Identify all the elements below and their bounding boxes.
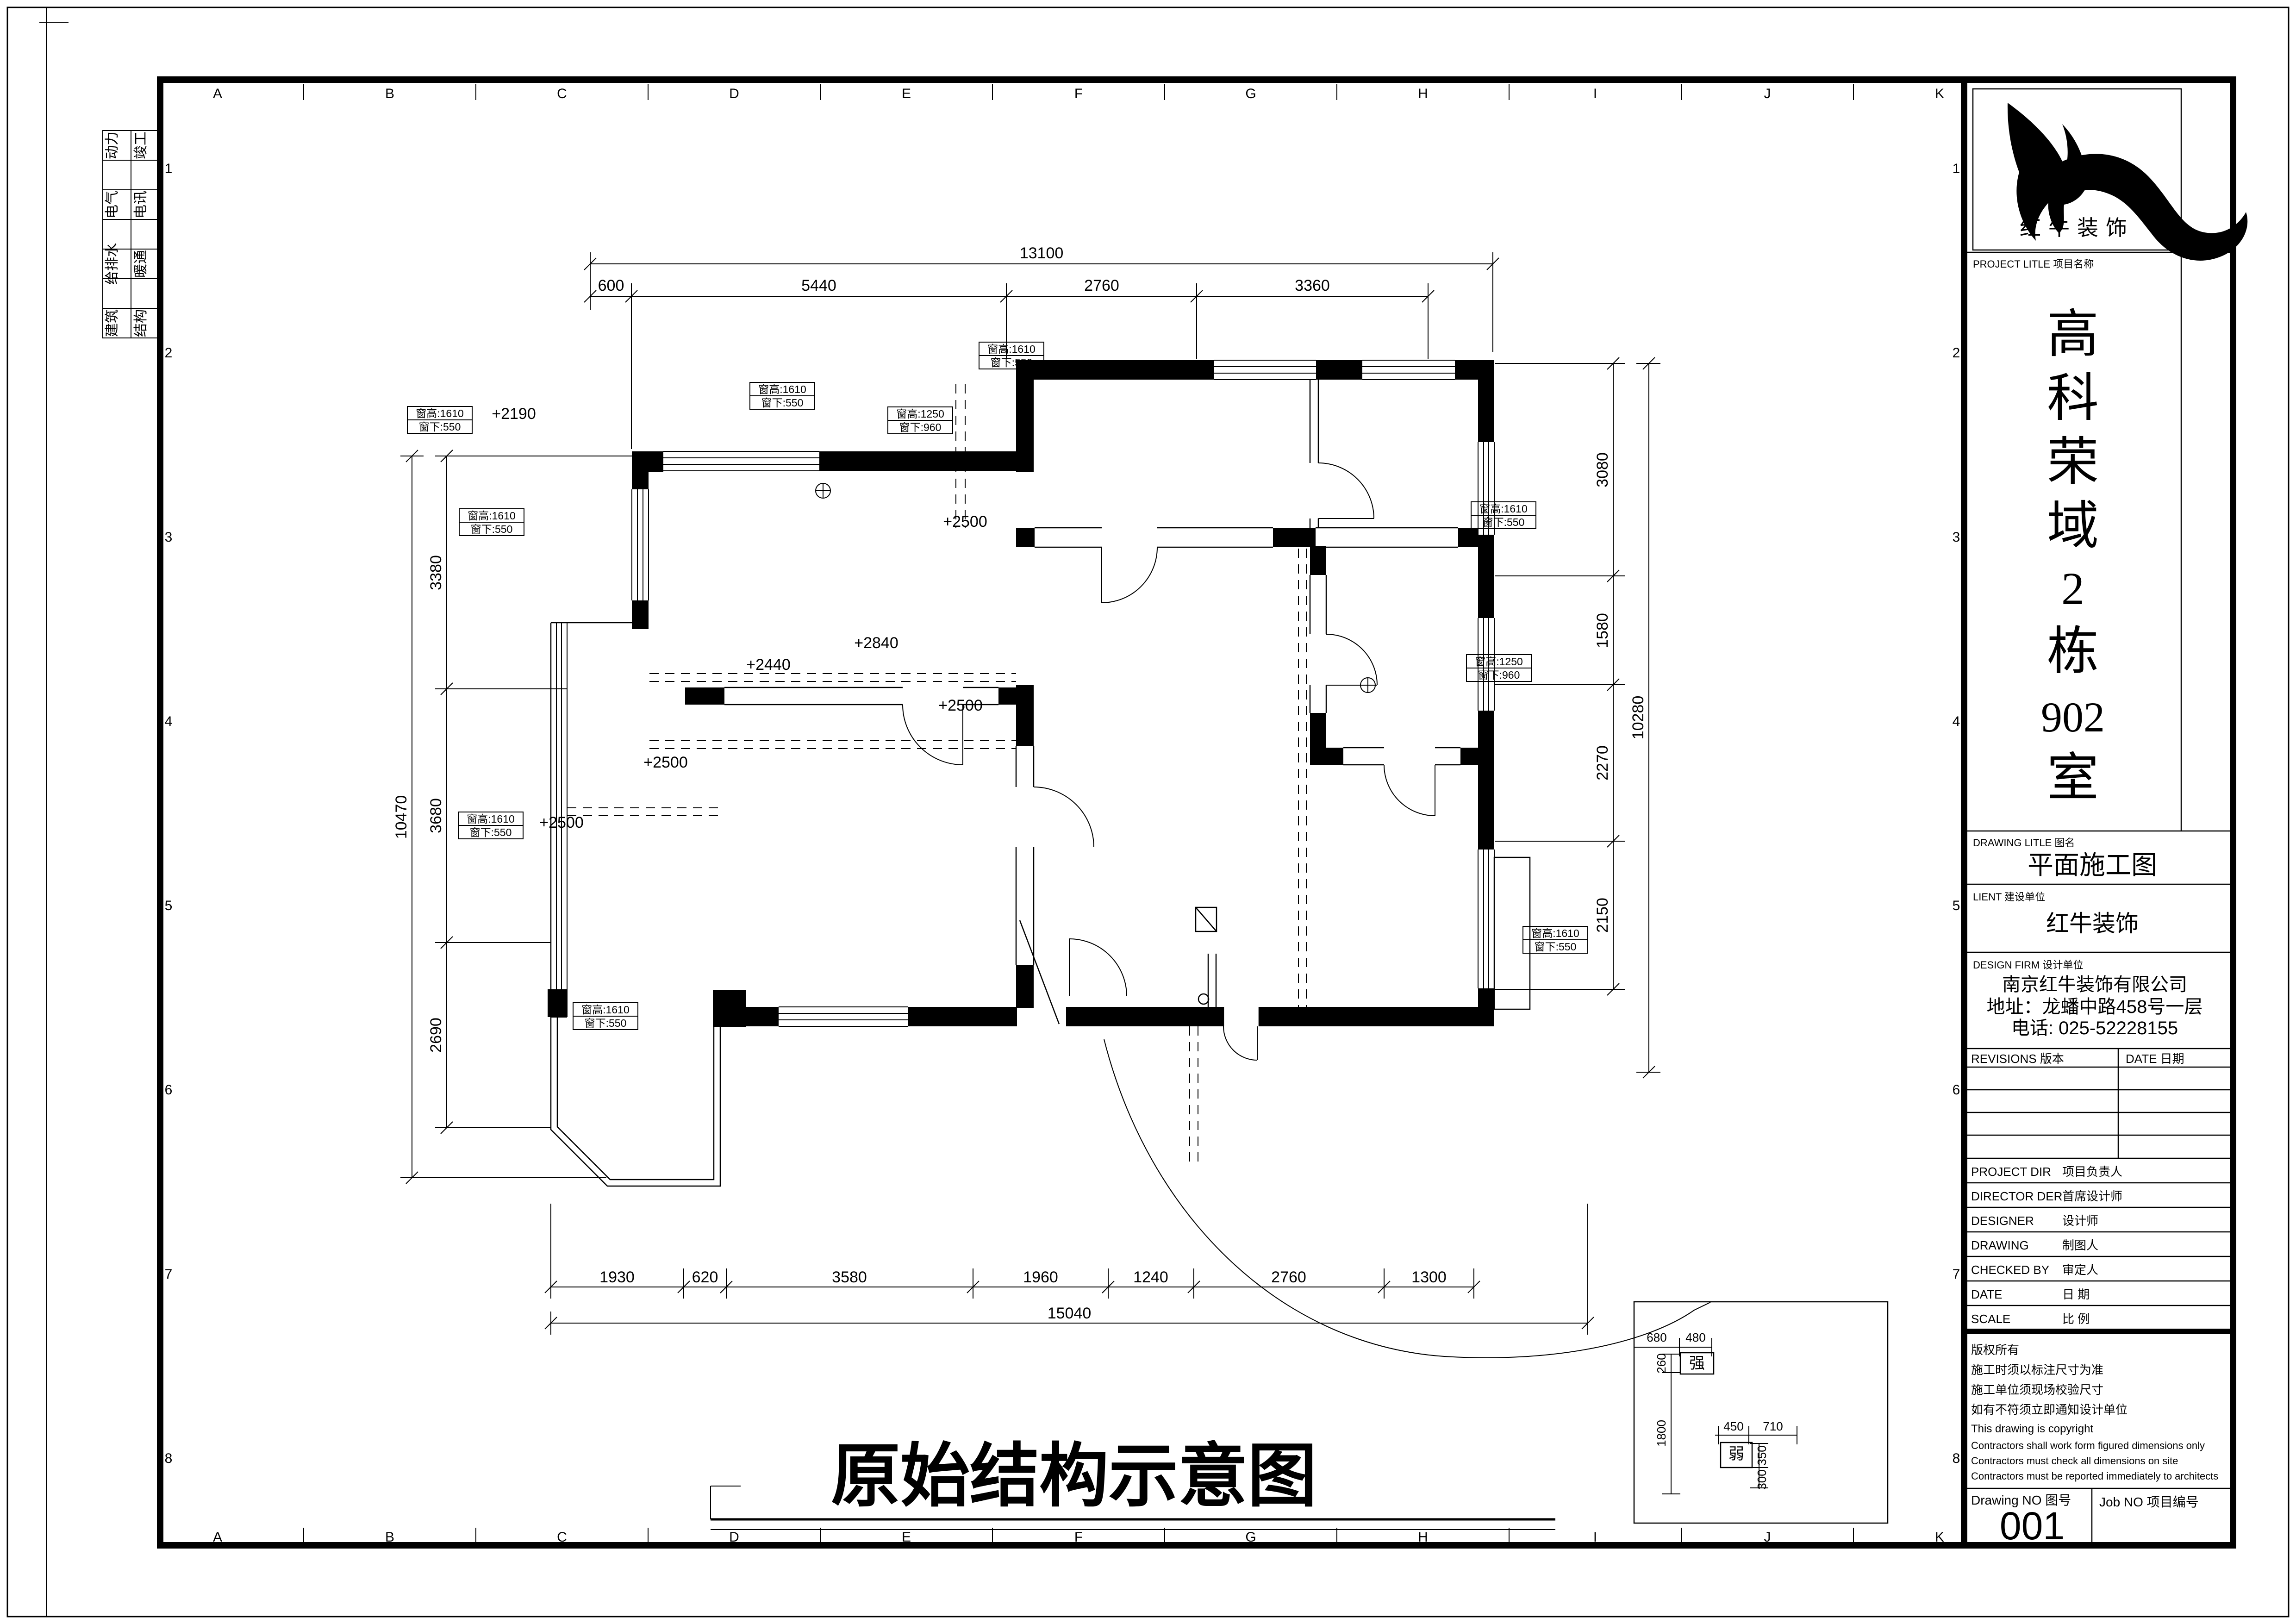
row-number: 6: [165, 1082, 173, 1098]
row-number: 6: [1953, 1082, 1960, 1098]
svg-text:项目负责人: 项目负责人: [2062, 1165, 2122, 1179]
row-number: 5: [165, 898, 173, 913]
svg-text:科: 科: [2047, 370, 2099, 427]
col-letter: A: [213, 1530, 222, 1545]
strong-electric-box-label: 强: [1689, 1355, 1705, 1372]
discipline-label: 建筑: [105, 309, 120, 337]
col-letter: C: [557, 86, 567, 101]
svg-text:日 期: 日 期: [2062, 1287, 2090, 1301]
svg-text:高: 高: [2047, 306, 2099, 363]
plan-walls: [548, 360, 1494, 1027]
col-letter: E: [902, 86, 911, 101]
detail-dim: 710: [1763, 1419, 1783, 1433]
col-letter: K: [1935, 1530, 1944, 1545]
dim-bottom-total: 15040: [1048, 1305, 1092, 1322]
copyright-block: 版权所有 施工时须以标注尺寸为准 施工单位须现场校验尺寸 如有不符须立即通知设计…: [1971, 1343, 2218, 1482]
dim-bottom: 1300: [1411, 1268, 1447, 1286]
page-border: [7, 7, 2289, 1617]
firm-phone: 电话: 025-52228155: [2011, 1018, 2178, 1038]
svg-text:DIRECTOR DER: DIRECTOR DER: [1971, 1189, 2062, 1203]
plan-doors: [903, 463, 1435, 1060]
window-tag: 窗高:1250 窗下:960: [888, 407, 953, 434]
dim-bottom: 1930: [599, 1268, 635, 1286]
col-letter: F: [1074, 1530, 1083, 1545]
dim-right: 3080: [1594, 452, 1611, 487]
svg-text:PROJECT DIR: PROJECT DIR: [1971, 1165, 2051, 1179]
dim-right: 1580: [1594, 613, 1611, 648]
row-number: 3: [165, 530, 173, 545]
plan-partitions: [551, 380, 1530, 1186]
row-number: 4: [1953, 714, 1960, 729]
survey-point-icon: [816, 483, 1375, 693]
svg-text:荣: 荣: [2047, 434, 2099, 491]
discipline-label: 竣工: [133, 131, 149, 159]
discipline-strip: 动力 竣工 电气 电讯 给排水 暖通 建筑 结构: [103, 131, 160, 338]
window-tags: 窗高:1610 窗下:550 窗高:1610 窗下:550 窗高:1610 窗下…: [407, 342, 1588, 1030]
level-mark: +2500: [643, 754, 688, 771]
dim-left: 3380: [427, 555, 445, 590]
col-letter: A: [213, 86, 222, 101]
level-mark: +2190: [492, 405, 536, 423]
col-letter: D: [729, 86, 739, 101]
svg-text:窗下:550: 窗下:550: [471, 523, 513, 535]
col-letter: H: [1418, 86, 1428, 101]
drawing-canvas: A B C D E F G H I J K A B C D E F G H I …: [0, 0, 2296, 1624]
row-number: 4: [165, 714, 173, 729]
svg-text:窗下:550: 窗下:550: [761, 397, 804, 409]
dim-top: 2760: [1084, 277, 1119, 294]
window-tag: 窗高:1610 窗下:550: [750, 382, 815, 409]
detail-dim: 480: [1685, 1330, 1705, 1344]
bull-logo-wave-icon: [2048, 154, 2248, 261]
col-letter: E: [902, 1530, 911, 1545]
window-tag: 窗高:1610 窗下:550: [1523, 926, 1588, 953]
dim-left: 3680: [427, 798, 445, 833]
svg-text:施工单位须现场校验尺寸: 施工单位须现场校验尺寸: [1971, 1383, 2103, 1397]
svg-text:窗下:960: 窗下:960: [1478, 669, 1520, 681]
window-tag: 窗高:1610 窗下:550: [459, 509, 524, 536]
level-mark: +2500: [938, 697, 983, 714]
firm-address: 地址：龙蟠中路458号一层: [1987, 997, 2203, 1017]
row-number: 1: [165, 161, 173, 176]
svg-text:窗高:1610: 窗高:1610: [467, 813, 515, 825]
svg-text:CHECKED BY: CHECKED BY: [1971, 1263, 2049, 1277]
level-mark: +2500: [943, 513, 987, 531]
detail-dim: 680: [1647, 1330, 1666, 1344]
row-number: 1: [1953, 161, 1960, 176]
detail-dim: 300: [1755, 1469, 1769, 1489]
svg-text:窗下:550: 窗下:550: [470, 826, 512, 838]
dim-right-total: 10280: [1629, 696, 1647, 740]
svg-text:域: 域: [2047, 498, 2099, 555]
svg-text:窗高:1610: 窗高:1610: [758, 383, 806, 395]
detail-dim: 350: [1755, 1445, 1769, 1465]
col-letter: D: [729, 1530, 739, 1545]
drawing-title: 平面施工图: [2028, 850, 2157, 880]
discipline-label: 电讯: [133, 191, 149, 219]
signature-rows: PROJECT DIR项目负责人 DIRECTOR DER首席设计师 DESIG…: [1971, 1165, 2122, 1326]
svg-text:DESIGNER: DESIGNER: [1971, 1214, 2034, 1228]
dim-bottom: 1960: [1023, 1268, 1058, 1286]
svg-text:This drawing is copyright: This drawing is copyright: [1971, 1423, 2093, 1435]
window-tag: 窗高:1610 窗下:550: [458, 812, 523, 839]
svg-text:室: 室: [2047, 750, 2099, 807]
cad-sheet: A B C D E F G H I J K A B C D E F G H I …: [0, 0, 2296, 1624]
plan-dashed-lines: [567, 384, 1306, 1167]
job-no-label: Job NO 项目编号: [2099, 1495, 2199, 1509]
col-letter: G: [1245, 86, 1256, 101]
col-letter: B: [385, 1530, 394, 1545]
dim-bottom: 2760: [1271, 1268, 1306, 1286]
detail-dim: 1800: [1654, 1420, 1668, 1447]
discipline-label: 暖通: [133, 250, 149, 278]
level-mark: +2440: [746, 656, 791, 674]
discipline-label: 动力: [105, 131, 120, 159]
col-letter: F: [1074, 86, 1083, 101]
row-number: 8: [165, 1451, 173, 1466]
window-tag: 窗高:1250 窗下:960: [1466, 655, 1531, 681]
svg-text:窗高:1610: 窗高:1610: [581, 1004, 630, 1016]
discipline-label: 电气: [105, 191, 120, 219]
svg-text:Contractors must be reported i: Contractors must be reported immediately…: [1971, 1470, 2218, 1482]
window-tag: 窗高:1610 窗下:550: [407, 406, 472, 433]
discipline-label: 结构: [133, 309, 149, 337]
row-number: 7: [165, 1267, 173, 1282]
col-letter: H: [1418, 1530, 1428, 1545]
col-letter: I: [1593, 86, 1597, 101]
dim-top: 600: [598, 277, 624, 294]
svg-text:Contractors must check all dim: Contractors must check all dimensions on…: [1971, 1455, 2178, 1467]
svg-text:审定人: 审定人: [2062, 1263, 2098, 1277]
detail-dim: 260: [1654, 1353, 1668, 1373]
svg-text:设计师: 设计师: [2062, 1214, 2098, 1228]
svg-text:窗下:550: 窗下:550: [1535, 941, 1577, 953]
project-name: 高 科 荣 域 2 栋 902 室: [2041, 306, 2105, 807]
row-number: 8: [1953, 1451, 1960, 1466]
col-letter: K: [1935, 86, 1944, 101]
col-letter: G: [1245, 1530, 1256, 1545]
row-number: 3: [1953, 530, 1960, 545]
svg-text:栋: 栋: [2047, 623, 2099, 681]
company-logo: 红牛装饰: [1973, 89, 2247, 261]
svg-text:DATE: DATE: [1971, 1287, 2002, 1301]
svg-text:902: 902: [2041, 693, 2105, 741]
dim-bottom: 3580: [832, 1268, 867, 1286]
svg-text:窗下:960: 窗下:960: [899, 421, 942, 433]
dim-bottom: 1240: [1133, 1268, 1168, 1286]
sheet-title: 原始结构示意图: [711, 1437, 1555, 1530]
col-letter: J: [1764, 86, 1771, 101]
svg-text:制图人: 制图人: [2062, 1238, 2098, 1252]
col-letter: B: [385, 86, 394, 101]
col-letter: C: [557, 1530, 567, 1545]
svg-text:版权所有: 版权所有: [1971, 1343, 2019, 1357]
row-number: 7: [1953, 1267, 1960, 1282]
svg-text:Contractors shall work form fi: Contractors shall work form figured dime…: [1971, 1440, 2205, 1451]
svg-text:如有不符须立即通知设计单位: 如有不符须立即通知设计单位: [1971, 1403, 2128, 1417]
svg-text:窗高:1250: 窗高:1250: [896, 408, 944, 420]
window-tag: 窗高:1610 窗下:550: [1471, 502, 1536, 529]
sheet-title-text: 原始结构示意图: [831, 1437, 1317, 1515]
svg-text:窗下:550: 窗下:550: [585, 1017, 627, 1029]
svg-text:窗高:1610: 窗高:1610: [1479, 503, 1528, 515]
dim-top: 3360: [1295, 277, 1330, 294]
level-mark: +2500: [539, 814, 584, 831]
dim-right: 2270: [1594, 745, 1611, 781]
window-tag: 窗高:1610 窗下:550: [573, 1003, 638, 1030]
weak-electric-box-label: 弱: [1728, 1445, 1744, 1463]
svg-text:窗高:1610: 窗高:1610: [1531, 927, 1579, 939]
client-label: LIENT 建设单位: [1973, 891, 2045, 903]
svg-text:窗高:1610: 窗高:1610: [468, 510, 516, 522]
svg-text:首席设计师: 首席设计师: [2062, 1189, 2122, 1203]
leader-curve: [1104, 1039, 1710, 1358]
firm-name: 南京红牛装饰有限公司: [2002, 974, 2187, 995]
dim-bottom: 620: [692, 1268, 718, 1286]
company-name: 红牛装饰: [2020, 216, 2134, 240]
svg-text:窗下:550: 窗下:550: [991, 356, 1033, 369]
design-firm-label: DESIGN FIRM 设计单位: [1973, 959, 2083, 971]
svg-text:SCALE: SCALE: [1971, 1312, 2010, 1326]
dim-top-total: 13100: [1020, 244, 1064, 262]
level-mark: +2840: [854, 634, 898, 652]
drawing-no: 001: [2000, 1504, 2065, 1548]
dim-left: 2690: [427, 1018, 445, 1053]
drawing-title-label: DRAWING LITLE 图名: [1973, 837, 2075, 849]
revisions-label: REVISIONS 版本: [1971, 1052, 2064, 1066]
col-letter: I: [1593, 1530, 1597, 1545]
row-number: 2: [165, 345, 173, 361]
svg-text:窗下:550: 窗下:550: [1483, 516, 1525, 528]
svg-text:窗高:1250: 窗高:1250: [1475, 656, 1523, 668]
date-header-label: DATE 日期: [2126, 1052, 2184, 1066]
dim-left-total: 10470: [393, 795, 410, 839]
title-block: 红牛装饰 PROJECT LITLE 项目名称 高 科 荣 域 2 栋 902 …: [1964, 89, 2247, 1548]
svg-text:窗下:550: 窗下:550: [419, 421, 461, 433]
svg-text:2: 2: [2061, 563, 2084, 614]
row-number: 2: [1953, 345, 1960, 361]
svg-text:施工时须以标注尺寸为准: 施工时须以标注尺寸为准: [1971, 1363, 2103, 1377]
svg-text:比 例: 比 例: [2062, 1312, 2090, 1326]
col-letter: J: [1764, 1530, 1771, 1545]
dim-top: 5440: [801, 277, 836, 294]
client-name: 红牛装饰: [2046, 911, 2139, 937]
svg-text:DRAWING: DRAWING: [1971, 1238, 2029, 1252]
svg-text:窗高:1610: 窗高:1610: [416, 407, 464, 419]
svg-text:窗高:1610: 窗高:1610: [987, 343, 1036, 355]
row-number: 5: [1953, 898, 1960, 913]
dim-right: 2150: [1594, 898, 1611, 933]
discipline-label: 给排水: [105, 243, 120, 285]
detail-dim: 450: [1723, 1419, 1743, 1433]
project-title-label: PROJECT LITLE 项目名称: [1973, 258, 2094, 270]
